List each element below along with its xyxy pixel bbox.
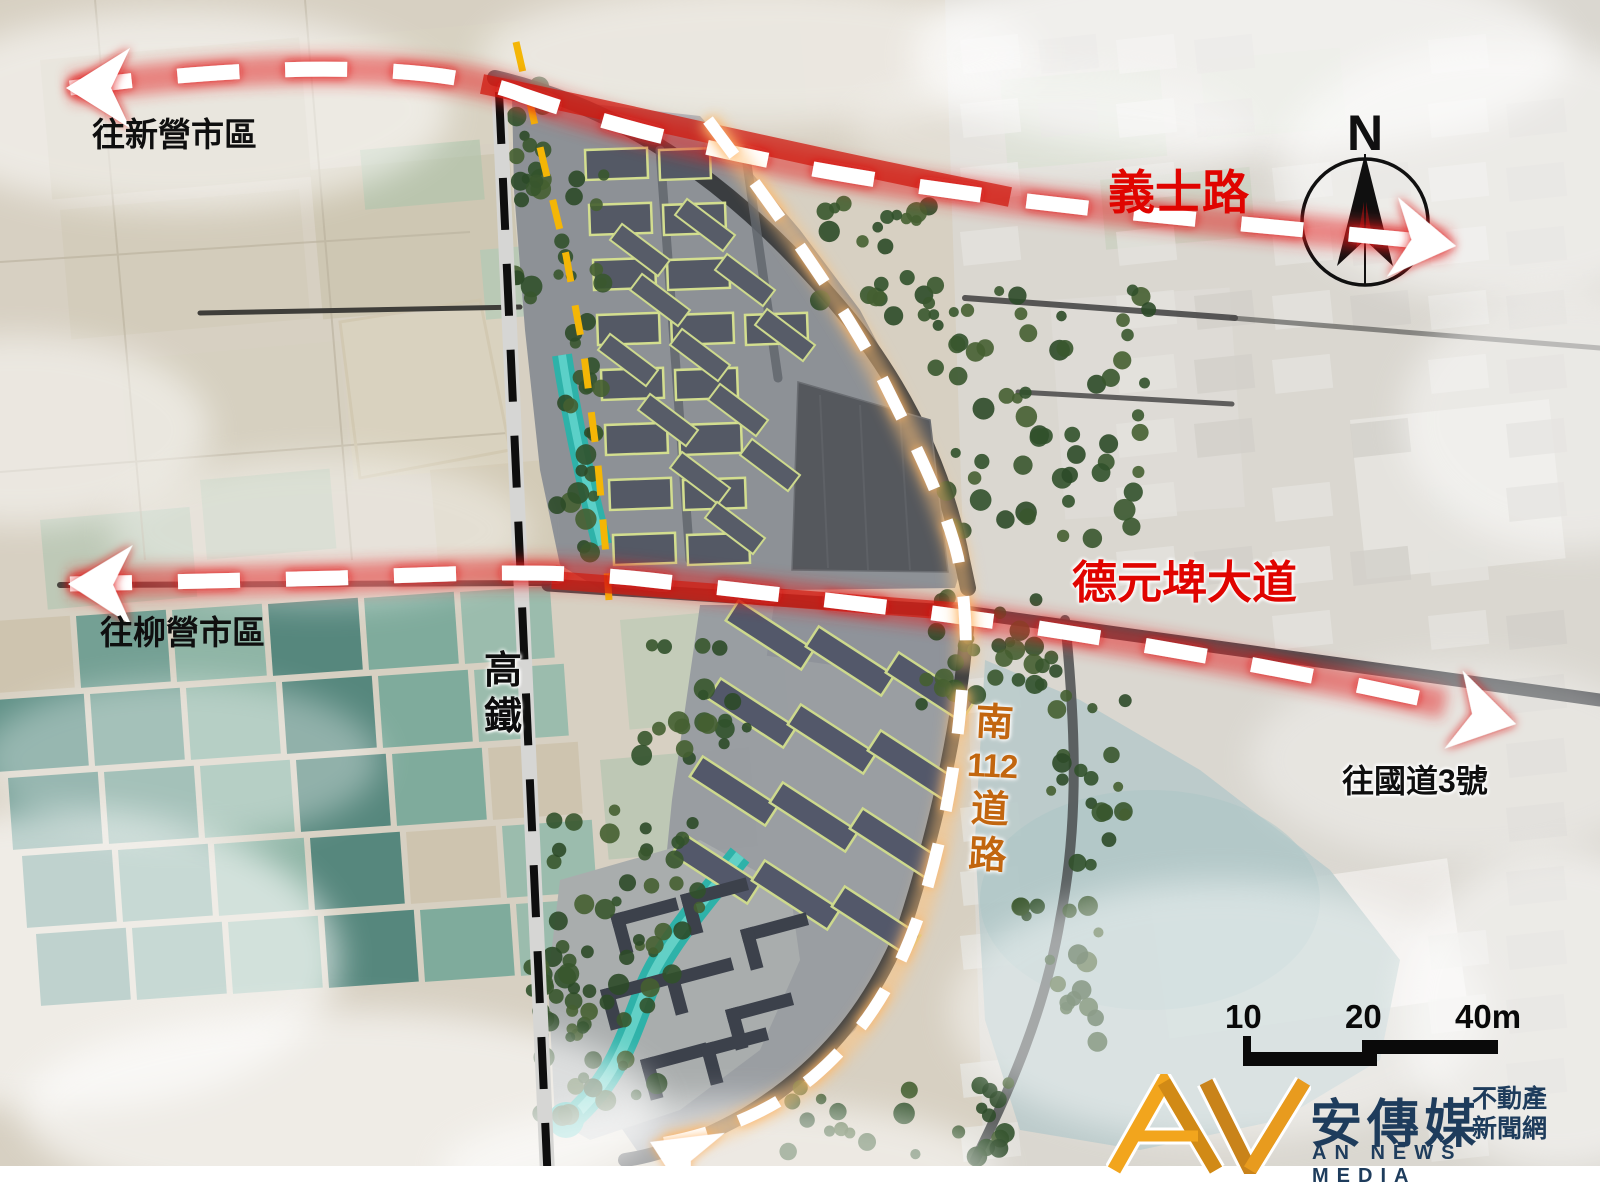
tree [970, 489, 992, 511]
label-yishi-road: 義士路 [1108, 154, 1249, 223]
tree [698, 714, 718, 734]
tree [1132, 466, 1144, 478]
tree [673, 921, 691, 939]
tree [514, 192, 529, 207]
existing-building [1350, 290, 1411, 330]
logo-mark-icon [1106, 1074, 1311, 1174]
tree [687, 817, 699, 829]
tree [976, 339, 993, 356]
tree [915, 698, 927, 710]
tree [590, 198, 603, 211]
tree [580, 1003, 598, 1021]
tree [994, 286, 1004, 296]
tree [951, 448, 961, 458]
site-plan-map: N 往新營市區 義士路 德元埤大道 往柳營市區 往國道3號 高 鐵 南 112 … [0, 0, 1600, 1200]
tree [1121, 329, 1134, 342]
tree [1052, 753, 1071, 772]
tree [1048, 700, 1067, 719]
tree [934, 679, 952, 697]
tree [1087, 703, 1097, 713]
label-to-xinying: 往新營市區 [92, 108, 257, 156]
tree [595, 899, 616, 920]
tree [1102, 369, 1120, 387]
tree [558, 963, 579, 984]
tree [877, 238, 893, 254]
tree [563, 398, 578, 413]
tree [548, 496, 566, 514]
tree [987, 670, 1003, 686]
tree [1030, 593, 1043, 606]
tree [1099, 434, 1118, 453]
tree [948, 336, 965, 353]
tree [524, 291, 537, 304]
tree [676, 740, 694, 758]
tree [1124, 483, 1143, 502]
tree [973, 398, 995, 420]
tree [554, 234, 569, 249]
tree [816, 1094, 827, 1105]
tree [1092, 802, 1112, 822]
tree [1114, 499, 1136, 521]
field-parcel [60, 189, 310, 339]
paddy-field [310, 832, 405, 910]
tree [576, 444, 597, 465]
factory-building [585, 148, 648, 180]
tree [600, 823, 620, 843]
paddy-field [420, 904, 515, 982]
existing-building [1272, 354, 1333, 394]
tree [619, 874, 636, 891]
existing-building [1194, 418, 1255, 458]
tree [918, 308, 931, 321]
tree [694, 902, 706, 914]
tree [522, 138, 537, 153]
tree [583, 984, 597, 998]
tree [927, 277, 944, 294]
tree [1015, 307, 1028, 320]
tree [1141, 302, 1156, 317]
tree [872, 222, 883, 233]
tree [1113, 351, 1131, 369]
tree [669, 876, 683, 890]
tree [641, 978, 660, 997]
tree [581, 945, 594, 958]
tree [657, 639, 672, 654]
tree [1057, 530, 1069, 542]
tree [695, 638, 711, 654]
compass-north-label: N [1347, 105, 1383, 161]
tree [609, 804, 620, 815]
scale-tick-10: 10 [1225, 998, 1262, 1036]
tree [829, 202, 840, 213]
paddy-field [406, 826, 501, 904]
tree [884, 306, 903, 325]
tree [719, 738, 730, 749]
paddy-field [268, 598, 363, 676]
tree [999, 388, 1015, 404]
tree [911, 215, 922, 226]
existing-building [1272, 482, 1333, 522]
tree [976, 1103, 987, 1114]
existing-building [1194, 290, 1255, 330]
tree [575, 508, 596, 529]
scale-bar-segment-b [1362, 1040, 1498, 1054]
tree [1012, 673, 1026, 687]
tree [666, 850, 684, 868]
tree [1013, 456, 1032, 475]
tree [549, 989, 564, 1004]
tree [1062, 467, 1078, 483]
tree [644, 878, 660, 894]
factory-building [605, 423, 668, 455]
tree [819, 221, 840, 242]
tree [639, 998, 655, 1014]
tree [1085, 859, 1097, 871]
tree [549, 912, 568, 931]
tree [1113, 782, 1123, 792]
tree [552, 843, 566, 857]
existing-building [960, 226, 1021, 266]
existing-building [1428, 546, 1489, 586]
logo-tagline: 不動產 新聞網 [1472, 1084, 1547, 1144]
tree [715, 719, 735, 739]
tree [974, 454, 989, 469]
tree [580, 542, 600, 562]
existing-building [1506, 610, 1567, 650]
factory-building [609, 478, 672, 510]
label-to-highway3: 往國道3號 [1342, 756, 1488, 802]
tree [933, 320, 944, 331]
tree [1019, 387, 1031, 399]
tree [1056, 340, 1073, 357]
tree [646, 639, 658, 651]
tree [608, 974, 629, 995]
label-south112-road: 南 112 道 路 [953, 698, 1028, 881]
tree [574, 894, 594, 914]
tree [1103, 747, 1119, 763]
tree [668, 711, 689, 732]
existing-building [1116, 226, 1177, 266]
tree [900, 270, 915, 285]
tree [927, 359, 944, 376]
tree [1035, 659, 1050, 674]
tree [1030, 428, 1049, 447]
tree [593, 274, 612, 293]
tree [961, 304, 974, 317]
tree [1068, 854, 1086, 872]
tree [1084, 771, 1099, 786]
tree [1016, 406, 1037, 427]
news-media-logo: 安傳媒 不動產 新聞網 AN NEWS MEDIA [1100, 1070, 1580, 1180]
tree [1067, 445, 1086, 464]
tree [1019, 324, 1037, 342]
tree [662, 964, 681, 983]
tree [1092, 463, 1111, 482]
tree [1139, 378, 1150, 389]
tree [1060, 690, 1072, 702]
tree [1056, 311, 1067, 322]
existing-building [1428, 610, 1489, 650]
tree [1132, 424, 1149, 441]
paddy-field [392, 748, 487, 826]
tree [901, 213, 913, 225]
tree [698, 690, 708, 700]
tree [598, 169, 609, 180]
tree [600, 995, 615, 1010]
existing-building [1272, 610, 1333, 650]
tree [671, 836, 684, 849]
label-deyuanpi-blvd: 德元埤大道 [1072, 546, 1297, 611]
factory-building [613, 533, 676, 565]
tree [1064, 427, 1080, 443]
tree [640, 822, 652, 834]
tree [891, 210, 902, 221]
tree [949, 367, 968, 386]
tree [856, 235, 868, 247]
tree [619, 950, 634, 965]
tree [874, 277, 889, 292]
tree [592, 380, 609, 397]
existing-building [1194, 354, 1255, 394]
tree [1035, 678, 1047, 690]
tree [652, 722, 666, 736]
tree [645, 936, 663, 954]
tree [1046, 786, 1056, 796]
tree [1102, 832, 1117, 847]
tree [1012, 898, 1030, 916]
tree [1127, 285, 1139, 297]
label-hsr: 高 鐵 [484, 648, 522, 741]
tree [616, 1012, 631, 1027]
tree [689, 882, 706, 899]
existing-building [1350, 546, 1411, 586]
tree [1119, 809, 1131, 821]
scale-bar-segment-a [1243, 1052, 1377, 1066]
tree [637, 731, 652, 746]
tree [546, 812, 562, 828]
tree [631, 745, 652, 766]
tree [742, 723, 752, 733]
scale-tick-20: 20 [1345, 998, 1382, 1036]
tree [996, 510, 1015, 529]
tree [568, 171, 585, 188]
tree [919, 673, 933, 687]
paddy-field [0, 616, 75, 694]
tree [526, 181, 542, 197]
tree [1008, 286, 1026, 304]
tree [1119, 694, 1132, 707]
tree [1132, 409, 1144, 421]
tree [982, 1083, 997, 1098]
tree [577, 1021, 589, 1033]
paddy-field [378, 670, 473, 748]
tree [633, 934, 645, 946]
tree [1049, 664, 1062, 677]
label-to-liuying: 往柳營市區 [100, 606, 265, 654]
tree [508, 148, 524, 164]
tree [968, 471, 981, 484]
tree [995, 649, 1013, 667]
tree [1056, 773, 1068, 785]
tree [576, 465, 588, 477]
tree [638, 848, 651, 861]
tree [565, 188, 583, 206]
tree [901, 1082, 918, 1099]
tree [1019, 508, 1036, 525]
logo-subtitle: AN NEWS MEDIA [1312, 1142, 1580, 1188]
tree [553, 269, 563, 279]
tree [1062, 495, 1075, 508]
tree [1116, 313, 1130, 327]
tree [1030, 899, 1045, 914]
tree [923, 297, 935, 309]
tree [567, 482, 589, 504]
tree [565, 813, 583, 831]
paddy-field [364, 592, 459, 670]
tree [724, 693, 741, 710]
tree [949, 307, 959, 317]
tree [712, 640, 727, 655]
tree [566, 1005, 578, 1017]
scale-tick-40: 40m [1455, 998, 1521, 1036]
